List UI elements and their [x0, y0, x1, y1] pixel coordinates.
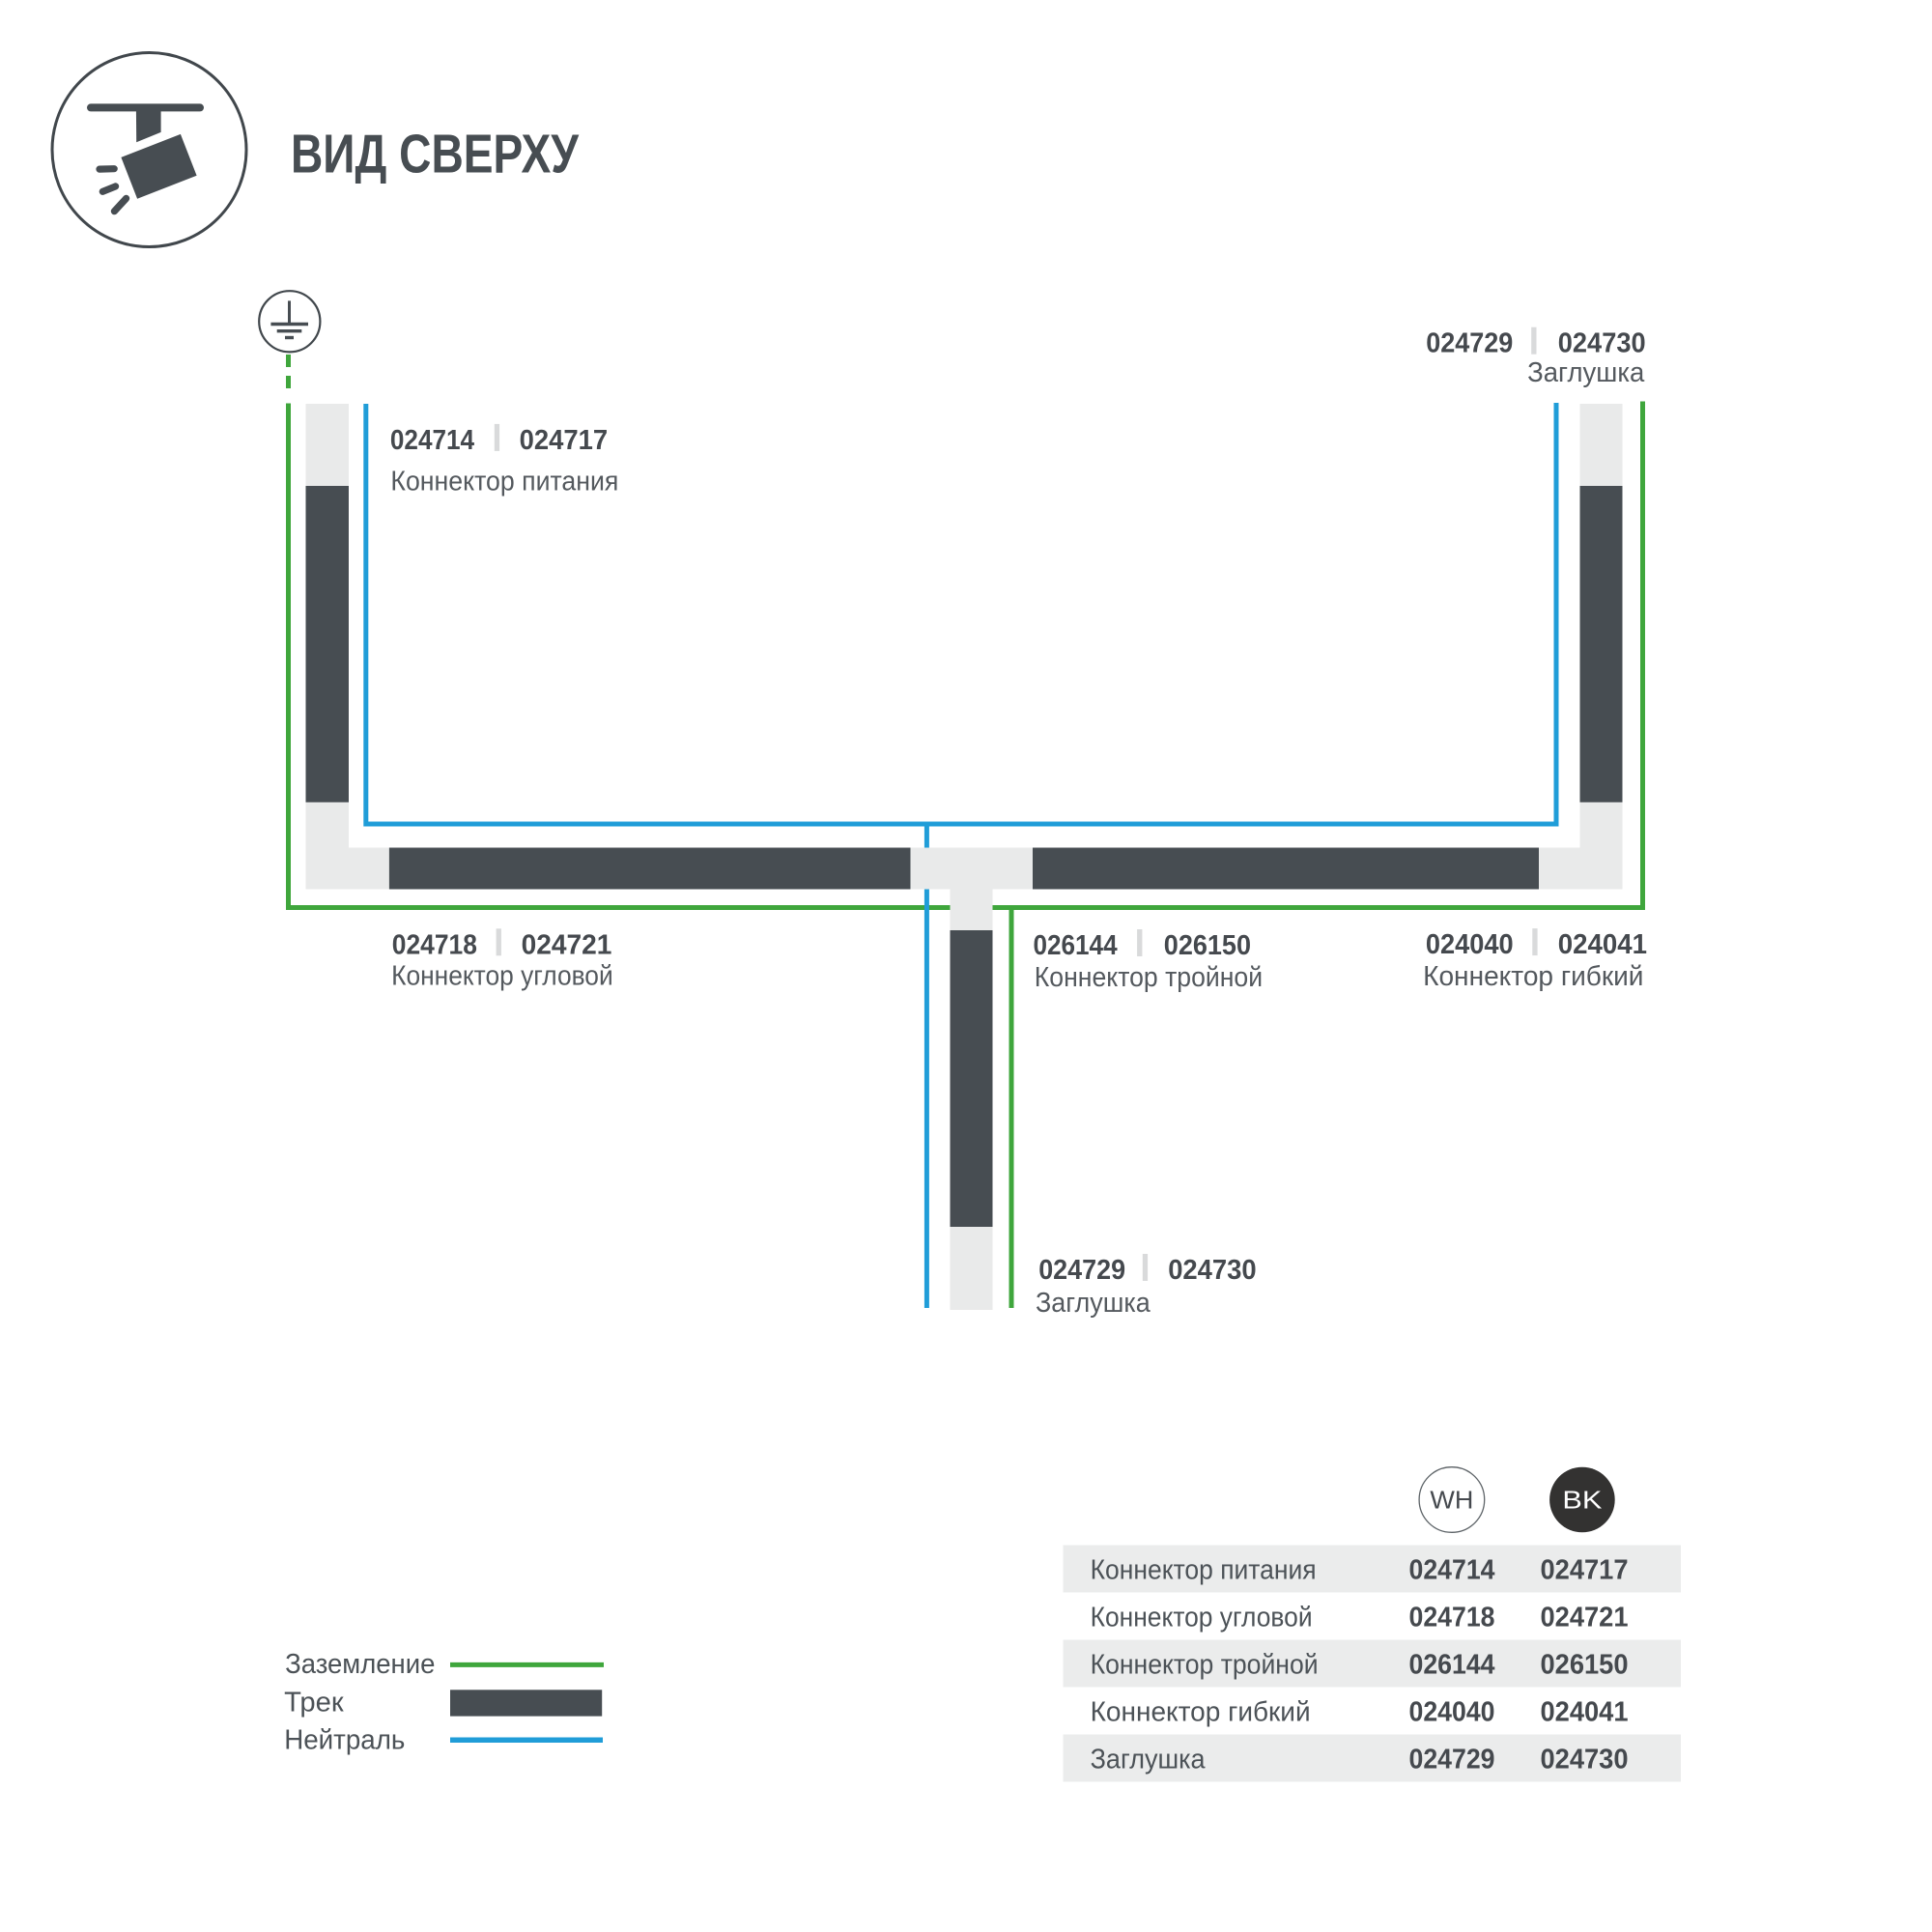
svg-text:BK: BK: [1562, 1486, 1603, 1515]
svg-text:024717: 024717: [1541, 1555, 1629, 1586]
svg-text:024729: 024729: [1426, 328, 1513, 359]
svg-text:024730: 024730: [1168, 1255, 1257, 1286]
svg-text:026144: 026144: [1034, 930, 1118, 961]
svg-text:024721: 024721: [522, 929, 612, 960]
svg-text:Коннектор питания: Коннектор питания: [1091, 1555, 1317, 1586]
svg-text:024721: 024721: [1541, 1603, 1629, 1634]
svg-text:024718: 024718: [392, 929, 477, 960]
svg-text:Коннектор тройной: Коннектор тройной: [1035, 962, 1263, 993]
svg-text:024718: 024718: [1409, 1603, 1495, 1634]
svg-text:Коннектор тройной: Коннектор тройной: [1091, 1650, 1319, 1681]
svg-text:Коннектор гибкий: Коннектор гибкий: [1091, 1697, 1311, 1728]
svg-text:024729: 024729: [1038, 1255, 1125, 1286]
svg-text:Коннектор гибкий: Коннектор гибкий: [1423, 961, 1643, 992]
svg-text:Заземление: Заземление: [285, 1649, 435, 1680]
svg-text:026144: 026144: [1409, 1650, 1495, 1681]
svg-text:024729: 024729: [1409, 1745, 1495, 1776]
svg-text:024041: 024041: [1558, 929, 1647, 960]
svg-text:024730: 024730: [1558, 328, 1646, 359]
svg-text:026150: 026150: [1164, 930, 1251, 961]
svg-text:Коннектор питания: Коннектор питания: [390, 466, 618, 497]
svg-text:026150: 026150: [1541, 1650, 1629, 1681]
svg-text:024040: 024040: [1426, 929, 1514, 960]
svg-text:Коннектор угловой: Коннектор угловой: [391, 961, 613, 992]
svg-text:024730: 024730: [1541, 1745, 1629, 1776]
svg-text:WH: WH: [1430, 1486, 1473, 1515]
svg-text:024041: 024041: [1541, 1697, 1629, 1728]
svg-text:024714: 024714: [1409, 1555, 1495, 1586]
svg-text:Трек: Трек: [284, 1688, 344, 1719]
svg-text:Заглушка: Заглушка: [1036, 1288, 1151, 1319]
svg-text:024717: 024717: [520, 425, 609, 456]
svg-text:Коннектор угловой: Коннектор угловой: [1091, 1603, 1313, 1634]
svg-text:024040: 024040: [1409, 1697, 1495, 1728]
svg-text:ВИД СВЕРХУ: ВИД СВЕРХУ: [291, 124, 579, 185]
svg-text:024714: 024714: [390, 425, 474, 456]
svg-text:Заглушка: Заглушка: [1527, 357, 1645, 388]
svg-text:Заглушка: Заглушка: [1091, 1745, 1207, 1776]
svg-text:Нейтраль: Нейтраль: [284, 1724, 405, 1755]
